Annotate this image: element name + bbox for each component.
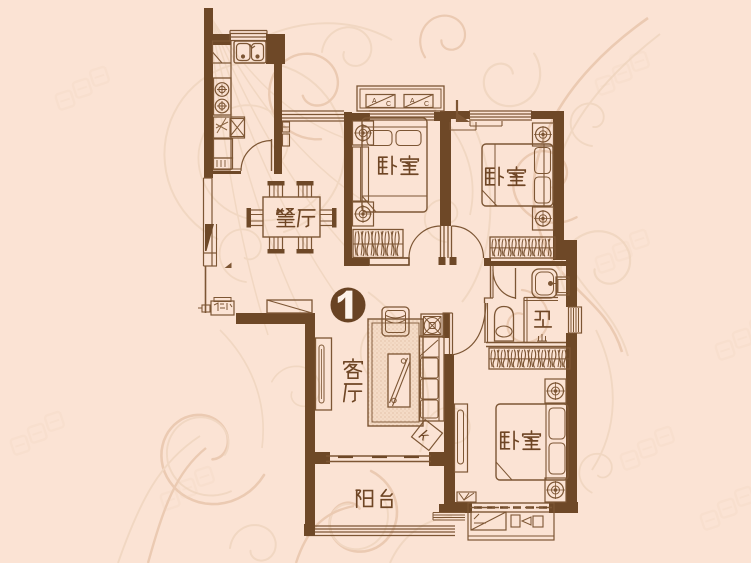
svg-text:A: A	[372, 98, 377, 105]
svg-text:C: C	[386, 101, 391, 108]
svg-text:A: A	[410, 98, 415, 105]
svg-text:C: C	[424, 101, 429, 108]
